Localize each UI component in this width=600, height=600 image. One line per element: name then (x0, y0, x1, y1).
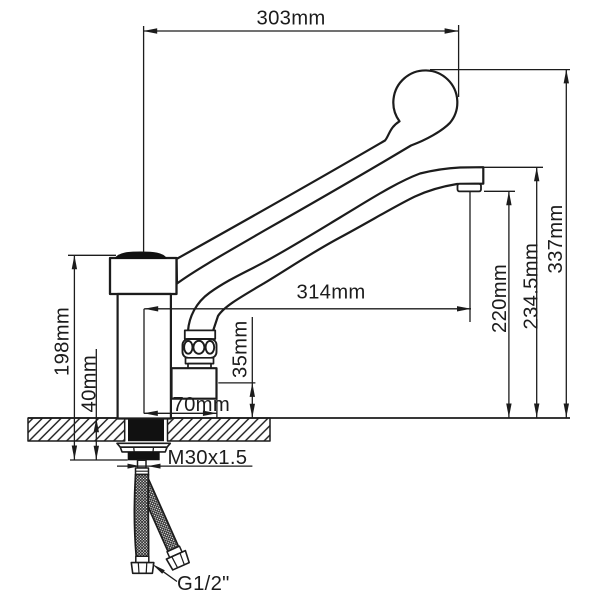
svg-text:337mm: 337mm (545, 204, 567, 273)
svg-text:M30x1.5: M30x1.5 (168, 447, 248, 469)
svg-text:303mm: 303mm (257, 8, 326, 30)
svg-text:40mm: 40mm (79, 355, 101, 413)
svg-text:70mm: 70mm (173, 394, 231, 416)
svg-text:198mm: 198mm (52, 307, 74, 376)
svg-text:314mm: 314mm (297, 282, 366, 304)
svg-text:220mm: 220mm (489, 264, 511, 333)
svg-text:G1/2": G1/2" (177, 573, 230, 595)
svg-text:234.5mm: 234.5mm (521, 243, 543, 330)
svg-text:35mm: 35mm (230, 320, 252, 378)
